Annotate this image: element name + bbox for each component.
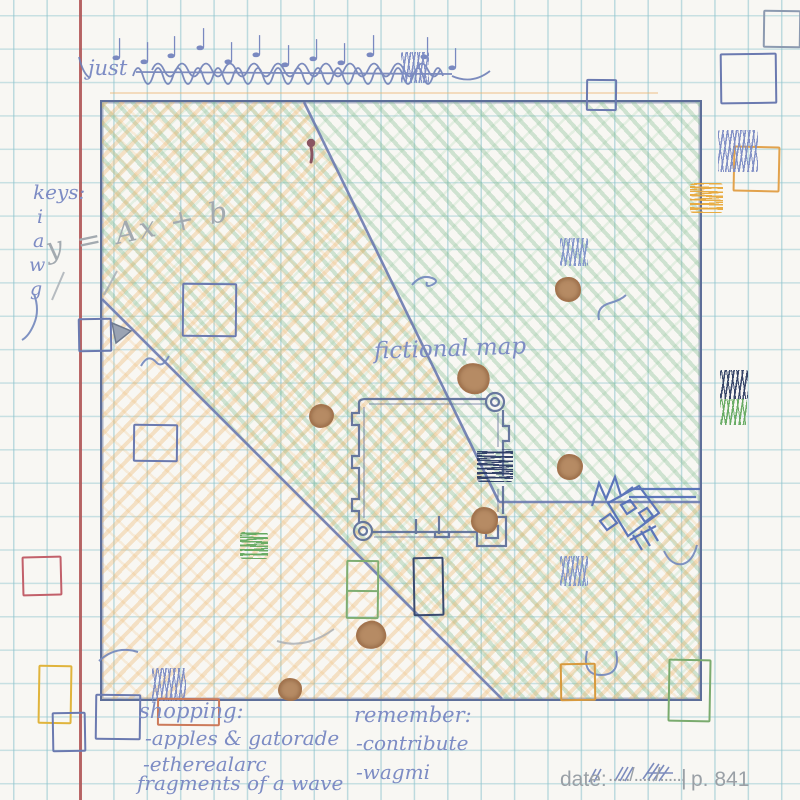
shopping-item: -apples & gatorade — [145, 726, 339, 750]
outline-square-orange — [560, 663, 597, 701]
scribble-square-navy — [720, 370, 748, 399]
outline-square-red — [22, 556, 63, 597]
scribble-square-blue — [152, 668, 186, 701]
coffee-stain — [471, 507, 498, 534]
keys-label: keys: — [33, 180, 85, 204]
key-letter: i — [37, 206, 43, 228]
music-note-icon: ♩ — [138, 40, 152, 70]
date-value: ...../...../...... — [608, 765, 685, 787]
fictional-map-area — [100, 100, 702, 701]
shopping-title: shopping: — [139, 699, 244, 723]
outline-square — [95, 694, 142, 741]
note-lead-word: just — [88, 56, 127, 80]
outline-square — [586, 79, 617, 111]
music-note-icon: ♩ — [307, 37, 321, 67]
outline-square-green — [667, 659, 711, 723]
outline-square — [182, 283, 237, 337]
outline-rect-green — [346, 560, 380, 619]
outline-square — [133, 424, 178, 462]
scribble-square-blue — [560, 238, 588, 266]
remember-item: -contribute — [356, 731, 468, 755]
scribble-square-blue — [718, 130, 758, 172]
date-page-divider: | — [681, 765, 687, 791]
outline-rect-navy — [412, 557, 444, 617]
notebook-page: fictional map — [0, 0, 800, 800]
music-note-icon: ♩ — [194, 26, 208, 56]
scribble-square-blue — [401, 52, 429, 83]
outline-square — [763, 10, 800, 49]
music-note-icon: ♩ — [446, 46, 460, 76]
remember-item: -wagmi — [356, 760, 430, 784]
music-note-icon: ♩ — [222, 40, 236, 70]
music-note-icon: ♩ — [335, 41, 349, 71]
shopping-item: fragments of a wave — [137, 771, 343, 795]
music-note-icon: ♩ — [250, 33, 264, 63]
outline-square — [52, 712, 87, 753]
scribble-square-green — [240, 532, 268, 559]
map-title: fictional map — [374, 333, 527, 364]
scribble-coil-navy — [477, 449, 513, 482]
rect-divider — [348, 589, 377, 591]
scribble-square-blue — [560, 556, 588, 586]
key-letter: w — [29, 254, 45, 276]
coffee-stain — [278, 678, 302, 701]
scribble-square-green — [720, 399, 747, 425]
coffee-stain — [555, 277, 581, 302]
scribble-square-yellow — [690, 183, 723, 213]
music-note-icon: ♩ — [364, 33, 378, 63]
music-note-icon: ♩ — [279, 43, 293, 73]
music-note-icon: ♩ — [165, 34, 179, 64]
date-label: date: — [560, 768, 607, 792]
outline-square — [78, 318, 113, 353]
highlighter-streak — [110, 92, 658, 94]
red-margin-line — [79, 0, 82, 800]
page-number: p. 841 — [691, 768, 749, 792]
remember-title: remember: — [354, 703, 472, 727]
key-letter: g — [30, 278, 42, 300]
outline-square — [720, 53, 778, 105]
